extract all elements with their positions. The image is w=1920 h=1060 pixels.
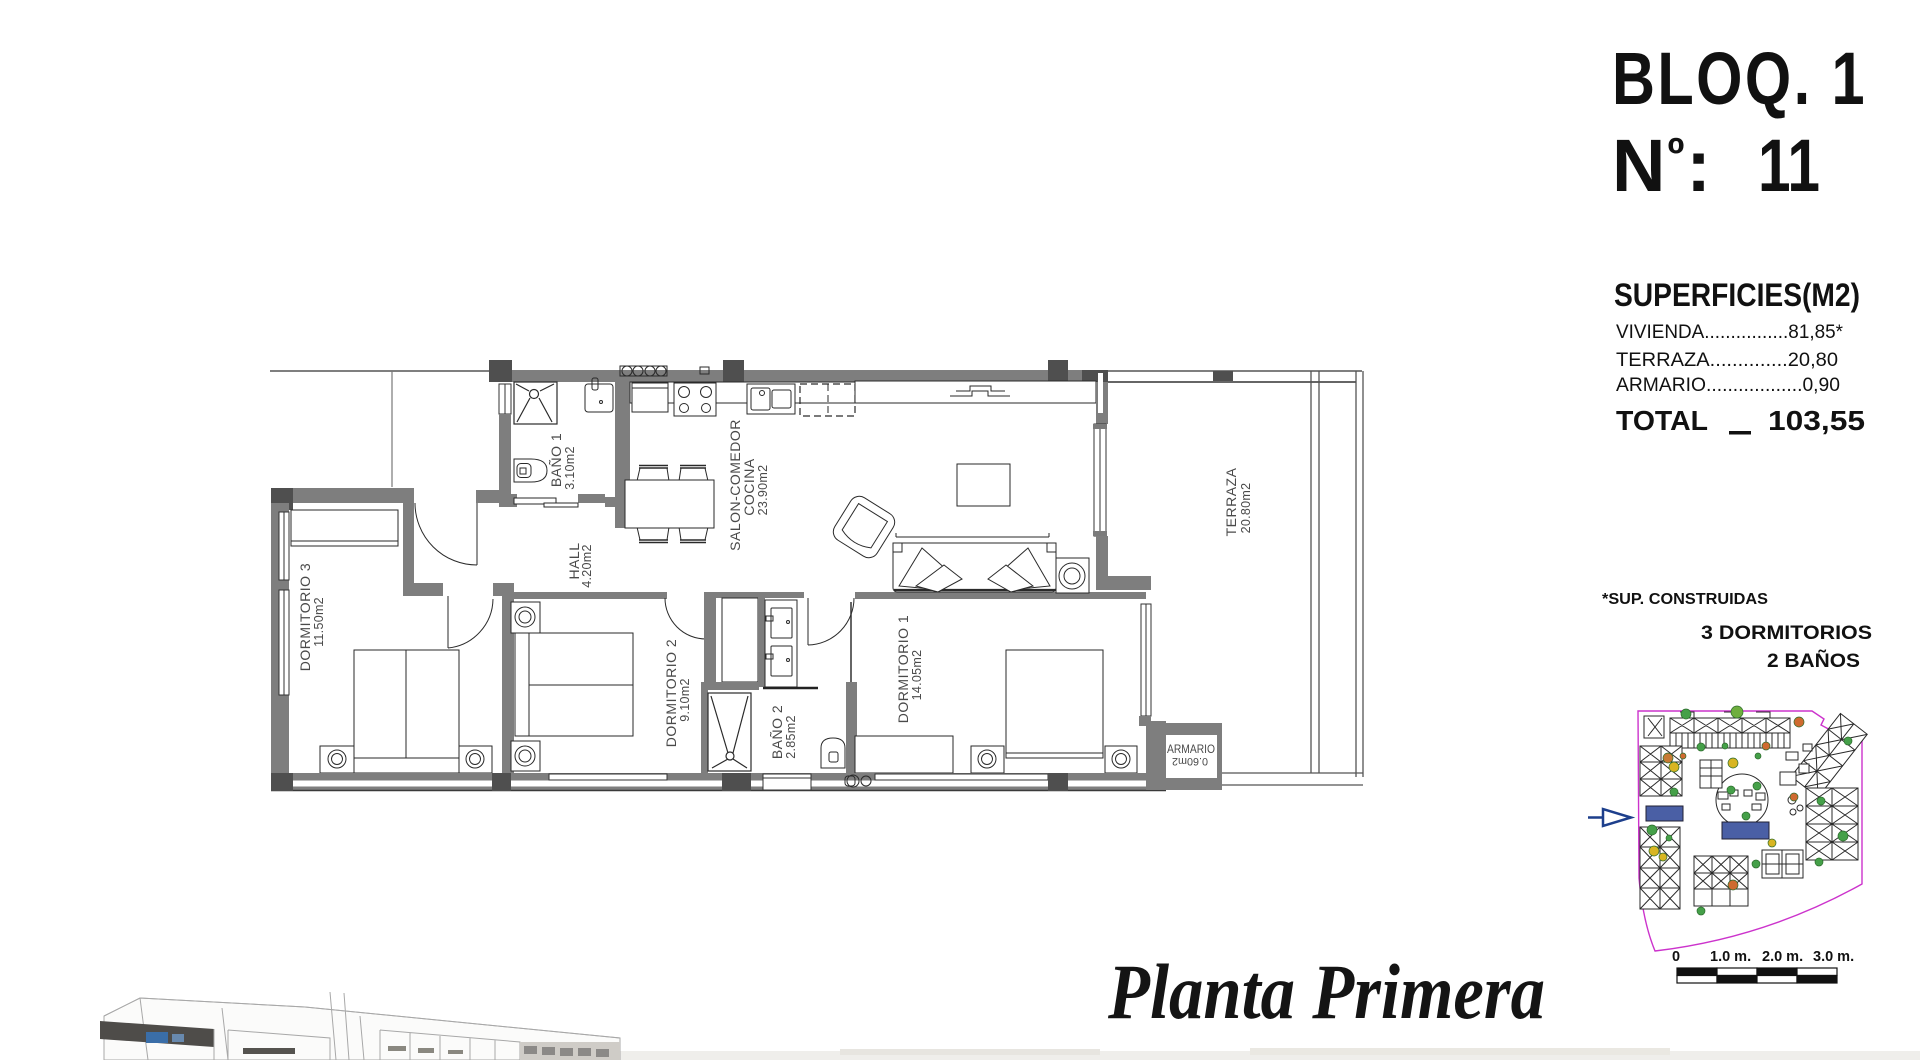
svg-text:2.0 m.: 2.0 m. <box>1762 949 1803 965</box>
svg-text:ARMARIO..................0,90: ARMARIO..................0,90 <box>1616 374 1840 396</box>
svg-text:3 DORMITORIOS: 3 DORMITORIOS <box>1701 623 1872 644</box>
svg-text:9.10m2: 9.10m2 <box>678 678 692 722</box>
svg-text:0: 0 <box>1672 949 1680 965</box>
svg-text:DORMITORIO 1: DORMITORIO 1 <box>895 615 911 723</box>
svg-text:103,55: 103,55 <box>1768 405 1865 436</box>
svg-text:SUPERFICIES(M2): SUPERFICIES(M2) <box>1614 277 1860 313</box>
svg-text:*SUP. CONSTRUIDAS: *SUP. CONSTRUIDAS <box>1602 591 1768 608</box>
svg-text:2.85m2: 2.85m2 <box>784 715 798 759</box>
svg-text:3.0 m.: 3.0 m. <box>1813 949 1854 965</box>
svg-text:3.10m2: 3.10m2 <box>563 446 577 490</box>
svg-text:11: 11 <box>1758 124 1820 207</box>
svg-text:11.50m2: 11.50m2 <box>312 597 326 647</box>
svg-text:BLOQ. 1: BLOQ. 1 <box>1612 37 1867 120</box>
svg-text:TERRAZA: TERRAZA <box>1223 467 1239 536</box>
svg-text:TERRAZA..............20,80: TERRAZA..............20,80 <box>1616 349 1838 371</box>
svg-text:DORMITORIO 3: DORMITORIO 3 <box>297 563 313 671</box>
svg-text:BAÑO 2: BAÑO 2 <box>769 705 785 759</box>
svg-text:TOTAL: TOTAL <box>1616 405 1708 436</box>
svg-text:14.05m2: 14.05m2 <box>910 650 924 701</box>
svg-text:Nº:: Nº: <box>1612 124 1713 207</box>
svg-text:1.0 m.: 1.0 m. <box>1710 949 1751 965</box>
svg-text:BAÑO 1: BAÑO 1 <box>548 433 564 487</box>
svg-text:Planta Primera: Planta Primera <box>1107 948 1545 1035</box>
svg-text:DORMITORIO 2: DORMITORIO 2 <box>663 639 679 747</box>
svg-text:ARMARIO: ARMARIO <box>1167 742 1215 756</box>
svg-text:4.20m2: 4.20m2 <box>580 544 594 588</box>
svg-text:23.90m2: 23.90m2 <box>756 465 770 516</box>
svg-text:0.60m2: 0.60m2 <box>1172 755 1208 767</box>
svg-text:2 BAÑOS: 2 BAÑOS <box>1767 650 1860 672</box>
svg-text:20.80m2: 20.80m2 <box>1239 483 1253 534</box>
svg-text:VIVIENDA................81,85*: VIVIENDA................81,85* <box>1616 321 1843 343</box>
svg-text:COCINA: COCINA <box>741 458 757 516</box>
